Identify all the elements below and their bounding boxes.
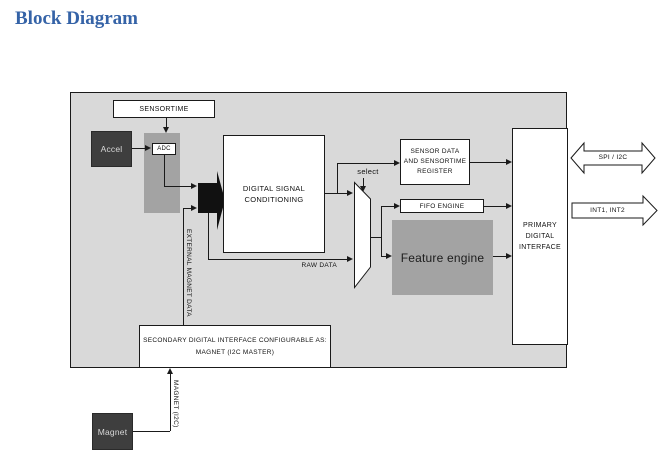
feature-to-primary-line	[493, 256, 506, 257]
magnet-label: Magnet	[98, 427, 128, 437]
sensor-data-register-block: SENSOR DATA AND SENSORTIME REGISTER	[400, 139, 470, 185]
mux-branch-vline	[381, 206, 382, 257]
sensortime-label: SENSORTIME	[139, 106, 188, 113]
sensortime-to-adc-arrowhead	[163, 127, 169, 133]
interrupts-label: INT1, INT2	[572, 203, 643, 217]
dsc-to-register-riser	[337, 163, 338, 193]
dsc-to-mux-line	[325, 193, 347, 194]
raw-data-hline	[208, 259, 347, 260]
adc-out-arrowhead	[191, 183, 197, 189]
external-magnet-vline	[183, 208, 184, 325]
data-merge-arrow-icon	[198, 171, 225, 230]
sensor-data-register-label: SENSOR DATA AND SENSORTIME REGISTER	[404, 147, 467, 177]
external-magnet-arrowhead	[191, 205, 197, 211]
adc-label: ADC	[157, 146, 171, 152]
feature-engine-label: Feature engine	[401, 251, 485, 265]
accel-to-adc-arrowhead	[145, 145, 151, 151]
dsc-to-mux-arrowhead	[347, 190, 353, 196]
adc-out-vline	[164, 155, 165, 186]
raw-data-label: RAW DATA	[280, 262, 337, 269]
primary-digital-interface-block: PRIMARY DIGITAL INTERFACE	[512, 128, 568, 345]
magnet-hline	[133, 431, 170, 432]
spi-i2c-label: SPI / I2C	[584, 150, 642, 164]
select-label: select	[350, 167, 386, 176]
accel-label: Accel	[101, 144, 123, 154]
mux-shape	[354, 182, 372, 288]
magnet-vline	[170, 373, 171, 431]
accel-to-adc-line	[132, 148, 146, 149]
adc-block: ADC	[152, 143, 176, 155]
secondary-digital-interface-label: SECONDARY DIGITAL INTERFACE CONFIGURABLE…	[143, 335, 327, 357]
magnet-i2c-label: MAGNET (I2C)	[172, 380, 179, 428]
digital-signal-conditioning-block: DIGITAL SIGNAL CONDITIONING	[223, 135, 325, 253]
block-diagram-page: Block Diagram SENSORTIME Accel ADC EXTER…	[0, 0, 665, 463]
adc-out-hline	[164, 186, 192, 187]
external-magnet-data-label: EXTERNAL MAGNET DATA	[185, 229, 192, 317]
page-title: Block Diagram	[15, 8, 138, 30]
fifo-engine-label: FIFO ENGINE	[420, 203, 465, 210]
fifo-to-primary-line	[484, 206, 506, 207]
magnet-block: Magnet	[92, 413, 133, 450]
fifo-engine-block: FIFO ENGINE	[400, 199, 484, 213]
dsc-to-register-line	[337, 163, 394, 164]
register-to-primary-line	[470, 162, 506, 163]
magnet-arrowhead	[167, 368, 173, 374]
sensortime-block: SENSORTIME	[113, 100, 215, 118]
dsc-label: DIGITAL SIGNAL CONDITIONING	[243, 183, 305, 206]
feature-engine-block: Feature engine	[392, 220, 493, 295]
mux-to-fifo-line	[381, 206, 394, 207]
accel-block: Accel	[91, 131, 132, 167]
secondary-digital-interface-block: SECONDARY DIGITAL INTERFACE CONFIGURABLE…	[139, 325, 331, 368]
raw-data-vline	[208, 213, 209, 259]
raw-data-arrowhead	[347, 256, 353, 262]
primary-digital-interface-label: PRIMARY DIGITAL INTERFACE	[519, 220, 561, 254]
